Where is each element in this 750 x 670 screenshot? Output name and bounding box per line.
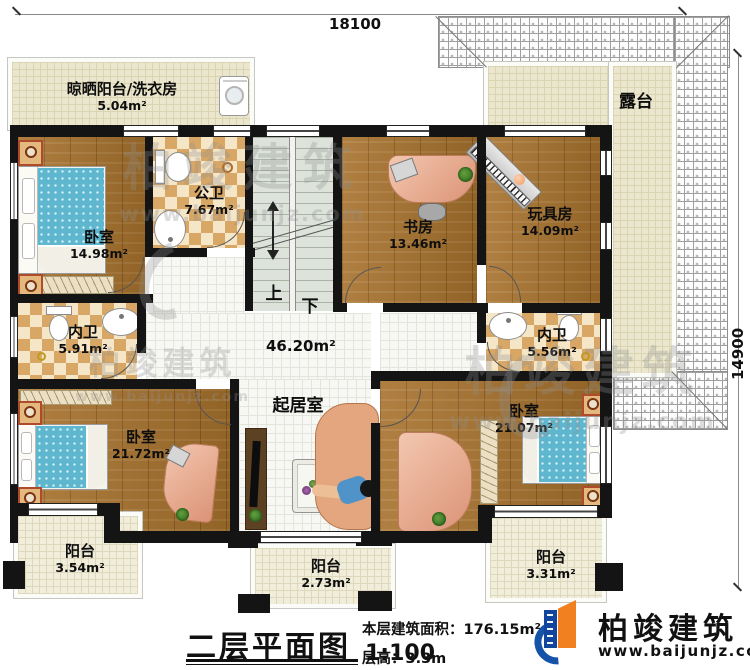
room-area: 21.72m² bbox=[97, 446, 185, 461]
room-name: 阳台 bbox=[511, 548, 591, 566]
floor-area-value: 176.15m² bbox=[464, 622, 541, 638]
pillar bbox=[238, 594, 270, 613]
floor-info: 本层建筑面积：176.15m² 层高：3.3m bbox=[362, 618, 541, 668]
window bbox=[213, 125, 251, 137]
room-area: 3.54m² bbox=[36, 560, 124, 575]
wall bbox=[104, 503, 120, 543]
room-area: 5.56m² bbox=[521, 344, 583, 359]
wall bbox=[333, 137, 342, 311]
floor-plan-canvas: 18100 14900 露台 晾晒阳台/洗衣房 5.04m² 上 下 bbox=[0, 0, 750, 670]
window bbox=[28, 503, 98, 516]
window bbox=[600, 426, 612, 484]
stair-down-label: 下 bbox=[296, 297, 324, 317]
room-area: 7.67m² bbox=[178, 202, 240, 217]
sofa-icon bbox=[315, 403, 379, 530]
nightstand-icon bbox=[18, 401, 42, 425]
room-name: 卧室 bbox=[55, 228, 143, 246]
roof-tiles-bottom bbox=[613, 371, 728, 430]
room-name: 内卫 bbox=[52, 323, 114, 341]
plant-icon bbox=[458, 167, 473, 182]
floor-height-line: 层高：3.3m bbox=[362, 647, 541, 668]
window bbox=[494, 505, 598, 518]
window bbox=[600, 150, 612, 176]
towel-ring-icon bbox=[222, 162, 233, 173]
wall bbox=[383, 303, 486, 312]
room-name: 公卫 bbox=[178, 184, 240, 202]
wall bbox=[333, 303, 347, 312]
window bbox=[10, 316, 18, 358]
room-public-bath-label: 公卫 7.67m² bbox=[178, 184, 240, 217]
hallway-floor bbox=[380, 313, 477, 371]
wall bbox=[10, 294, 153, 303]
floor-area-line: 本层建筑面积：176.15m² bbox=[362, 618, 541, 639]
stair-stringer bbox=[289, 137, 296, 311]
room-name: 卧室 bbox=[97, 428, 185, 446]
toilet-icon bbox=[155, 150, 165, 184]
wall bbox=[477, 303, 488, 313]
window bbox=[10, 162, 18, 220]
pillar bbox=[358, 591, 392, 611]
dimension-right-value: 14900 bbox=[729, 328, 747, 380]
window bbox=[260, 531, 362, 543]
room-area: 5.91m² bbox=[52, 341, 114, 356]
window bbox=[600, 222, 612, 250]
dimension-line-right bbox=[738, 55, 739, 588]
pillar bbox=[3, 561, 25, 589]
logo-building-icon bbox=[558, 600, 576, 648]
room-area: 14.98m² bbox=[55, 246, 143, 261]
title-underline bbox=[186, 664, 358, 665]
wall bbox=[371, 423, 380, 543]
wall bbox=[245, 137, 253, 311]
room-area: 3.31m² bbox=[511, 566, 591, 581]
wall bbox=[477, 137, 486, 265]
wall bbox=[477, 313, 486, 343]
floor-height-label: 层高： bbox=[362, 651, 406, 667]
room-name: 卧室 bbox=[480, 402, 568, 420]
room-name: 阳台 bbox=[36, 542, 124, 560]
window bbox=[123, 125, 179, 137]
floor-area-label: 本层建筑面积： bbox=[362, 622, 464, 638]
room-study-label: 书房 13.46m² bbox=[385, 218, 451, 251]
bed-icon bbox=[18, 424, 108, 490]
wall bbox=[137, 303, 146, 353]
toilet-icon bbox=[165, 152, 191, 182]
hallway-floor bbox=[146, 313, 371, 379]
nightstand-icon bbox=[18, 140, 43, 166]
room-bedroom-nw-label: 卧室 14.98m² bbox=[55, 228, 143, 261]
plant-icon bbox=[249, 509, 262, 522]
pillar bbox=[228, 531, 258, 548]
room-terrace-label: 露台 bbox=[602, 92, 670, 112]
plant-icon bbox=[432, 512, 446, 526]
company-website: www.baijunjz.com bbox=[598, 642, 750, 660]
stair-arrow-down bbox=[267, 250, 279, 260]
window bbox=[266, 125, 320, 137]
washing-machine-icon bbox=[219, 76, 249, 116]
roof-tiles-right bbox=[674, 16, 728, 430]
toilet-brush-icon bbox=[37, 352, 46, 361]
title-underline bbox=[186, 659, 358, 662]
wall bbox=[10, 379, 196, 389]
logo-tower-icon bbox=[544, 610, 557, 648]
wall bbox=[378, 531, 490, 543]
plant-icon bbox=[176, 508, 189, 521]
wall bbox=[522, 303, 612, 313]
pillar bbox=[595, 563, 623, 591]
toilet-icon bbox=[46, 306, 72, 315]
stair-up-label: 上 bbox=[260, 284, 288, 304]
room-balcony-sw-label: 阳台 3.54m² bbox=[36, 542, 124, 575]
room-ensuite-west-label: 内卫 5.91m² bbox=[52, 323, 114, 356]
room-bedroom-sw-label: 卧室 21.72m² bbox=[97, 428, 185, 461]
window bbox=[386, 125, 430, 137]
room-living-label: 起居室 bbox=[257, 396, 339, 416]
dimension-top-value: 18100 bbox=[310, 15, 400, 33]
window bbox=[600, 318, 612, 352]
room-area: 14.09m² bbox=[514, 223, 586, 238]
wall bbox=[145, 248, 207, 257]
wall bbox=[371, 371, 612, 381]
ball-icon bbox=[514, 174, 525, 185]
room-name: 内卫 bbox=[521, 326, 583, 344]
room-laundry-label: 晾晒阳台/洗衣房 5.04m² bbox=[22, 80, 222, 113]
hallway-floor bbox=[153, 257, 245, 313]
room-name: 玩具房 bbox=[514, 205, 586, 223]
wall bbox=[230, 379, 239, 543]
room-area: 5.04m² bbox=[22, 98, 222, 113]
window bbox=[10, 413, 18, 485]
floor-height-value: 3.3m bbox=[406, 651, 447, 667]
stair-arrow-line bbox=[272, 210, 274, 252]
room-bedroom-se-label: 卧室 21.07m² bbox=[480, 402, 568, 435]
room-area: 13.46m² bbox=[385, 236, 451, 251]
room-name: 晾晒阳台/洗衣房 bbox=[22, 80, 222, 98]
room-name: 书房 bbox=[385, 218, 451, 236]
window bbox=[504, 125, 586, 137]
room-ensuite-east-label: 内卫 5.56m² bbox=[521, 326, 583, 359]
room-area: 2.73m² bbox=[286, 575, 366, 590]
room-balcony-s-label: 阳台 2.73m² bbox=[286, 557, 366, 590]
room-name: 阳台 bbox=[286, 557, 366, 575]
room-balcony-se-label: 阳台 3.31m² bbox=[511, 548, 591, 581]
wall bbox=[145, 137, 153, 255]
stair-arrow-up bbox=[267, 201, 279, 211]
company-logo bbox=[534, 598, 592, 666]
room-toy-label: 玩具房 14.09m² bbox=[514, 205, 586, 238]
hall-area-label: 46.20m² bbox=[266, 337, 330, 355]
room-area: 21.07m² bbox=[480, 420, 568, 435]
